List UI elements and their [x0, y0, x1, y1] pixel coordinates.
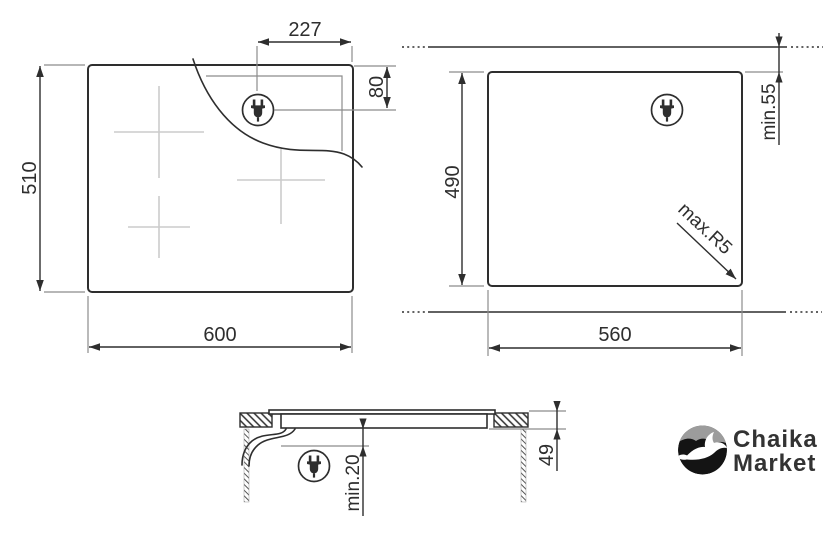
section-view: min.20 49: [240, 401, 566, 516]
hob-top-view: 510 600 227 80: [19, 19, 396, 353]
dim-height-49: 49: [489, 401, 566, 471]
dim-cutout-width-560: 560: [488, 290, 742, 356]
power-cable: [242, 429, 295, 466]
dim-min20-label: min.20: [343, 454, 364, 511]
installation-diagram: 510 600 227 80: [0, 0, 840, 536]
dim-cutout-depth-490: 490: [442, 72, 484, 286]
logo-text-line2: Market: [733, 450, 816, 477]
dim-490-label: 490: [442, 165, 464, 198]
dim-width-600: 600: [88, 296, 352, 353]
dim-80-label: 80: [366, 76, 388, 98]
cutout-rect: [488, 72, 742, 286]
dim-min55-label: min.55: [759, 83, 780, 140]
hob-body: [281, 414, 487, 428]
plug-icon: [299, 451, 330, 482]
chaika-market-logo: Chaika Market: [676, 424, 818, 477]
plug-icon: [243, 95, 274, 126]
logo-text-line1: Chaika: [733, 426, 818, 453]
dim-rear-min55: min.55: [745, 33, 783, 145]
worktop-left: [240, 413, 272, 427]
dim-49-label: 49: [536, 444, 558, 466]
dim-560-label: 560: [598, 324, 631, 346]
plug-icon: [652, 95, 683, 126]
dim-600-label: 600: [203, 324, 236, 346]
dim-510-label: 510: [19, 161, 41, 194]
cutout-top-view: 490 min.55 max.R5 560: [402, 33, 823, 356]
dim-227-label: 227: [288, 19, 321, 41]
cabinet-panel-right: [521, 429, 526, 502]
worktop-right: [494, 413, 528, 427]
dim-depth-510: 510: [19, 65, 85, 292]
